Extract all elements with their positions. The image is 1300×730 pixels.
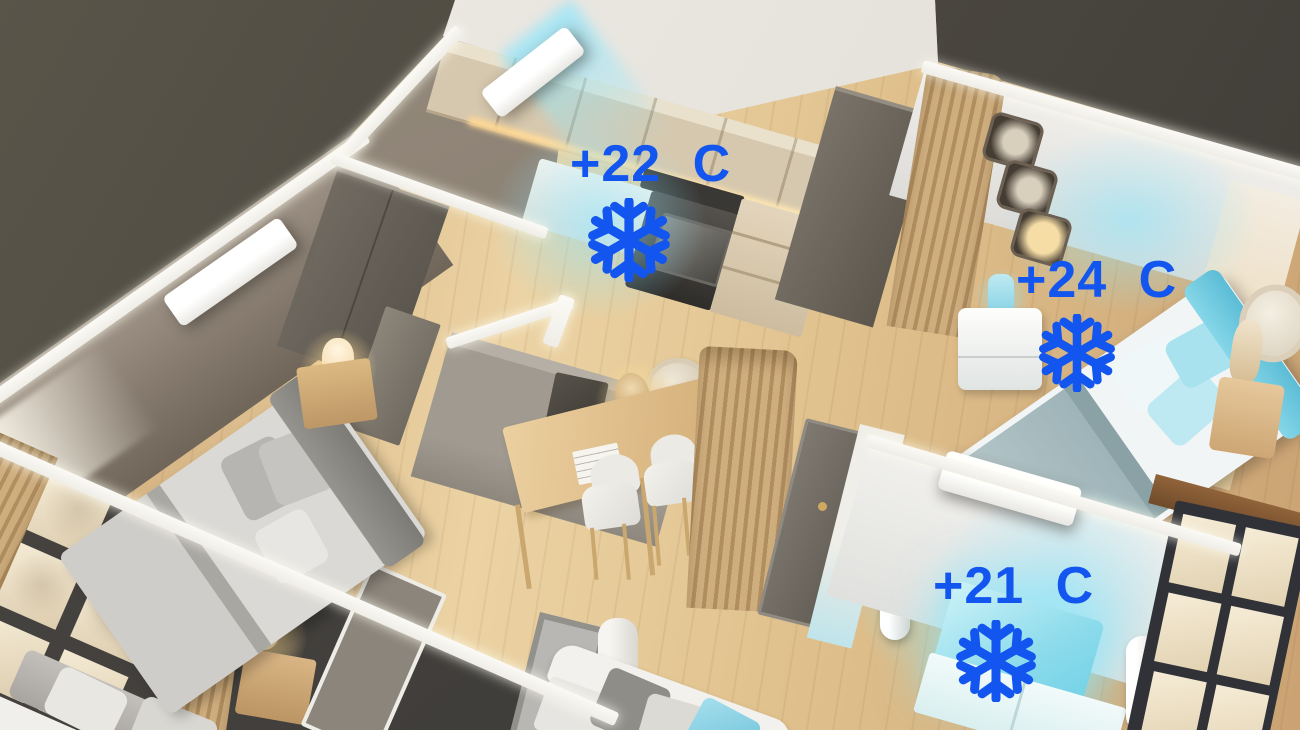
living-room-temperature-annotation: +21 C xyxy=(933,560,1094,702)
kitchen-temperature-label: +22 C xyxy=(570,138,731,190)
window-pane xyxy=(1154,592,1221,672)
living-room-temperature-label: +21 C xyxy=(933,560,1094,612)
window-pane xyxy=(1217,606,1284,686)
snowflake-icon xyxy=(955,620,1037,702)
door-handle xyxy=(818,502,827,511)
apartment-cutaway-scene: +22 C +24 C +21 C xyxy=(0,0,1300,730)
window-pane xyxy=(1231,527,1298,607)
chair-seat xyxy=(580,480,642,531)
bedroom-temperature-label: +24 C xyxy=(1016,254,1177,306)
window-pane xyxy=(1202,684,1269,730)
snowflake-icon xyxy=(1038,314,1116,392)
nightstand-tan xyxy=(296,358,378,430)
kitchen-temperature-annotation: +22 C xyxy=(570,138,731,282)
window-pane xyxy=(1139,671,1206,730)
bedroom-temperature-annotation: +24 C xyxy=(1016,254,1177,392)
snowflake-icon xyxy=(587,198,671,282)
